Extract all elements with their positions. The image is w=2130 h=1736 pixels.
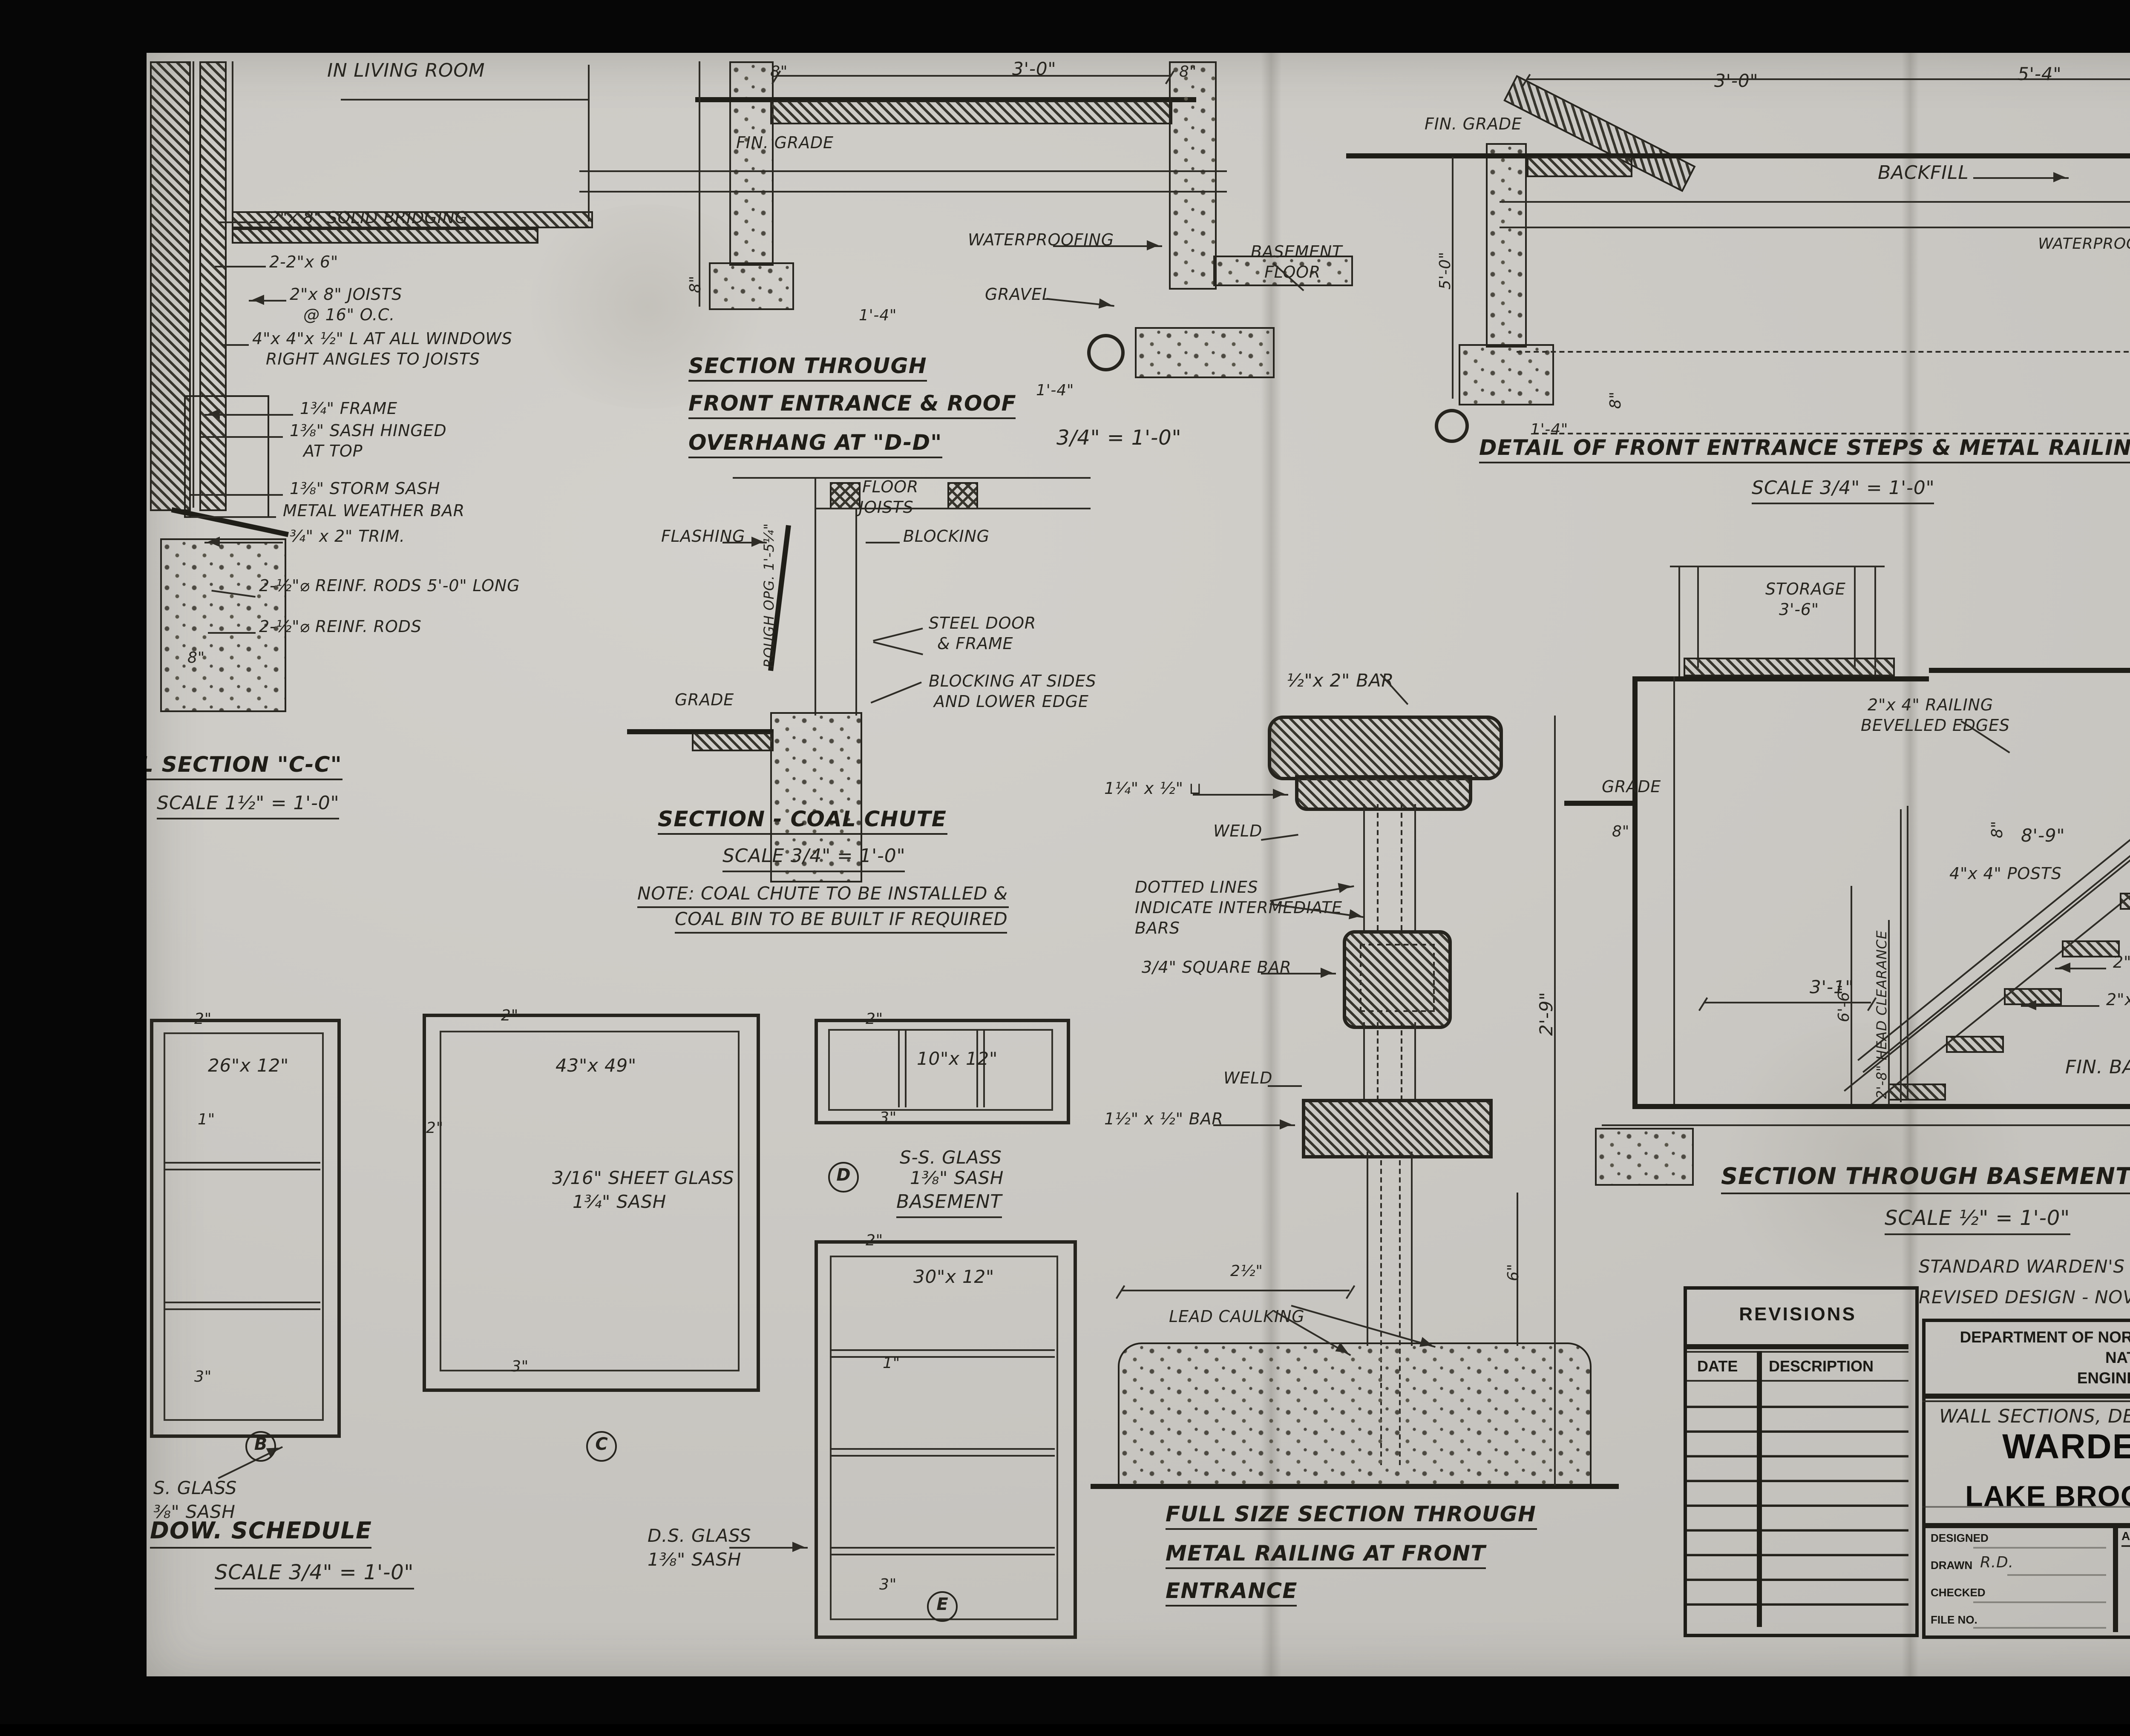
square-bar-dashed-core <box>1360 944 1435 1012</box>
dim-8in: 8" <box>1612 825 1629 842</box>
revisions-col-date: DATE <box>1697 1358 1738 1375</box>
field-drawn-value: R.D. <box>1980 1555 2014 1573</box>
window-b-tag: B <box>245 1431 276 1462</box>
leader-arrow <box>2021 1005 2099 1008</box>
footing <box>1135 327 1275 378</box>
window-b-divider <box>164 1169 320 1171</box>
label-bottom-bar: 1½" x ½" BAR <box>1104 1112 1223 1131</box>
dim-8in: 8" <box>1179 65 1197 82</box>
first-floor-line <box>1929 668 2130 672</box>
label-waterproofing: WATERPROOFING <box>968 233 1114 252</box>
drain-tile-circle <box>1087 334 1125 371</box>
dim-2half <box>1121 1290 1350 1292</box>
window-d-glass2: 1⅜" SASH <box>910 1169 1004 1189</box>
window-b-size: 26"x 12" <box>208 1056 289 1077</box>
window-schedule-title: DOW. SCHEDULE <box>150 1520 372 1549</box>
dim-8ft9: 8'-9" <box>2021 826 2065 847</box>
label-blocking-sides2: AND LOWER EDGE <box>934 695 1089 714</box>
window-b-divider <box>164 1302 320 1304</box>
window-e-dim1: 1" <box>883 1356 900 1374</box>
grade-line <box>1564 801 1632 805</box>
window-e-divider <box>830 1349 1055 1352</box>
dim-5ft: 5'-0" <box>1438 252 1456 290</box>
window-e-divider <box>830 1547 1055 1549</box>
dim-5ft4: 5'-4" <box>2018 65 2062 85</box>
label-sash-hinged2: AT TOP <box>303 445 363 463</box>
ground-line <box>1091 1484 1619 1488</box>
wall-line <box>232 61 234 211</box>
window-b-dim2: 2" <box>194 1012 212 1029</box>
leader-line <box>208 632 256 635</box>
dim-line <box>588 65 590 221</box>
window-b-dim3: 3" <box>194 1370 212 1387</box>
window-c-tag: C <box>586 1431 617 1462</box>
leader-line <box>218 221 266 224</box>
floor-joist <box>947 482 978 509</box>
label-weld2: WELD <box>1223 1072 1272 1090</box>
ground-hatch <box>1527 157 1632 177</box>
label-trim: ¾" x 2" TRIM. <box>290 530 405 549</box>
label-angle-windows2: RIGHT ANGLES TO JOISTS <box>266 353 480 371</box>
label-angle-windows: 4"x 4"x ½" L AT ALL WINDOWS <box>252 332 512 351</box>
storage-slab-hatch <box>1684 658 1895 676</box>
leader-arrow <box>1193 794 1288 796</box>
window-e-glass: D.S. GLASS <box>648 1526 751 1547</box>
window-e-size: 30"x 12" <box>913 1268 994 1288</box>
label-2x6: 2-2"x 6" <box>269 256 338 274</box>
guide-line <box>699 61 701 307</box>
ground-hatch <box>692 733 774 751</box>
leader-arrow <box>2055 968 2106 970</box>
label-waterproofing: WATERPROOFING <box>2038 237 2130 254</box>
titleblock-subject: WALL SECTIONS, DETAILS. <box>1939 1407 2130 1429</box>
approval-signature <box>2123 1530 2130 1625</box>
label-joists-spacing: @ 16" O.C. <box>303 308 395 327</box>
dim-8in-vert: 8" <box>1990 821 2008 838</box>
window-b-divider <box>164 1162 320 1164</box>
grade-line <box>1346 153 2130 158</box>
dotted-rule <box>1973 1627 2106 1630</box>
leader-line <box>191 494 283 497</box>
window-c-dim2: 2" <box>501 1009 518 1026</box>
project-stamp-line2: LAKE BROOK N.I.D. FUNDY N.P. <box>1874 1480 2130 1515</box>
window-c-glass2: 1¾" SASH <box>573 1193 666 1213</box>
stairs-scale: SCALE ½" = 1'-0" <box>1885 1208 2070 1235</box>
label-square-bar: 3/4" SQUARE BAR <box>1142 961 1292 980</box>
titleblock-rule <box>1922 1394 2130 1398</box>
window-d-divider <box>905 1029 907 1107</box>
intermediate-bar-dashed <box>1377 1022 1379 1101</box>
label-storage: STORAGE <box>1765 583 1846 601</box>
label-steel-door: STEEL DOOR <box>929 617 1036 635</box>
railing-title2: METAL RAILING AT FRONT <box>1166 1542 1486 1569</box>
window-d-room: BASEMENT <box>896 1193 1002 1218</box>
footing <box>709 262 794 310</box>
label-lead-caulking: LEAD CAULKING <box>1169 1310 1304 1329</box>
dim-1ft4: 1'-4" <box>1036 383 1074 401</box>
steps-detail-title: DETAIL OF FRONT ENTRANCE STEPS & METAL R… <box>1479 436 2130 464</box>
label-dotted-lines3: BARS <box>1135 922 1180 940</box>
label-half-2-bar: ½"x 2" BAR <box>1287 671 1394 692</box>
label-backfill: BACKFILL <box>1878 164 1969 185</box>
window-c-dim3: 3" <box>511 1359 529 1377</box>
stair-tread <box>1946 1036 2004 1053</box>
label-weather-bar: METAL WEATHER BAR <box>283 504 465 523</box>
storage-line <box>1670 566 1885 568</box>
window-e-divider <box>830 1455 1055 1457</box>
wall-line <box>855 508 858 716</box>
coal-chute-scale: SCALE 3/4" = 1'-0" <box>722 847 906 872</box>
section-dd-title2: FRONT ENTRANCE & ROOF <box>688 392 1016 420</box>
dim-2half-label: 2½" <box>1230 1264 1263 1282</box>
label-fin-grade: FIN. GRADE <box>1425 118 1522 136</box>
window-e-divider <box>830 1356 1055 1359</box>
bar-edge <box>1363 804 1366 930</box>
leader-arrow <box>204 414 293 417</box>
window-c-size: 43"x 49" <box>556 1056 636 1077</box>
dim-3ft: 3'-0" <box>1012 60 1056 80</box>
leader-arrow <box>1973 177 2069 180</box>
leader-arrow <box>729 1547 808 1549</box>
window-e-divider <box>830 1554 1055 1556</box>
scan-border-left <box>0 0 147 1724</box>
label-floor-joists2: JOISTS <box>859 501 914 520</box>
label-railing: 2"x 4" RAILING <box>1868 698 1993 717</box>
scanned-blueprint-page: IN LIVING ROOM 2"x 8" SOLID BRIDGING 2-2… <box>0 0 2130 1724</box>
field-designed: DESIGNED <box>1931 1533 1989 1545</box>
revisions-rule <box>1687 1380 1908 1382</box>
dim-line <box>341 99 588 101</box>
ground-hatch <box>770 101 1172 124</box>
label-grade: GRADE <box>675 693 734 712</box>
coal-chute-note1: NOTE: COAL CHUTE TO BE INSTALLED & <box>637 884 1008 908</box>
footing <box>1595 1128 1694 1186</box>
floor-hatch <box>232 228 538 244</box>
dim-8in-vert: 8" <box>1609 391 1626 409</box>
leader-line <box>866 542 900 544</box>
section-dd-scale: 3/4" = 1'-0" <box>1056 428 1181 451</box>
window-b-dim1: 1" <box>198 1112 215 1130</box>
dotted-rule <box>1973 1547 2106 1549</box>
revisions-title: REVISIONS <box>1684 1305 1912 1325</box>
window-c-glass: 3/16" SHEET GLASS <box>552 1169 734 1189</box>
drain-tile-circle <box>1435 409 1469 443</box>
bar-edge <box>1367 1152 1369 1346</box>
dotted-rule <box>1973 1601 2106 1604</box>
window-b-divider <box>164 1308 320 1311</box>
concrete-step <box>1118 1342 1592 1489</box>
window-b-inner <box>164 1032 324 1421</box>
leader-line <box>201 436 283 439</box>
label-joists: 2"x 8" JOISTS <box>290 288 402 307</box>
section-cc-scale: SCALE 1½" = 1'-0" <box>157 794 340 819</box>
window-d-dim2: 2" <box>866 1012 883 1029</box>
window-c-dim2l: 2" <box>426 1121 443 1138</box>
window-e-dim2: 2" <box>866 1233 883 1251</box>
leader-line <box>222 344 249 347</box>
stair-tread <box>2062 940 2120 957</box>
leader-arrow <box>204 542 283 544</box>
label-in-living-room: IN LIVING ROOM <box>327 61 485 83</box>
foundation-wall <box>1169 61 1217 290</box>
titleblock-dept2: NATIONAL PARKS BRANCH <box>1926 1349 2130 1366</box>
intermediate-bar-dashed <box>1401 804 1402 930</box>
titleblock-note1: STANDARD WARDEN'S RESIDENCE - TYPE N.P.2… <box>1919 1257 2130 1278</box>
rail-channel <box>1295 775 1472 811</box>
label-blocking: BLOCKING <box>903 530 990 549</box>
label-railing2: BEVELLED EDGES <box>1861 719 2010 738</box>
scan-border-bottom <box>0 1676 2130 1724</box>
field-drawn: DRAWN <box>1931 1561 1972 1572</box>
titleblock-dept3: ENGINEERING SERVICES DIVISION <box>1926 1370 2130 1387</box>
window-e-divider <box>830 1448 1055 1451</box>
stair-post <box>1900 809 1903 1102</box>
label-posts: 4"x 4" POSTS <box>1949 867 2062 886</box>
dim-1ft4: 1'-4" <box>859 308 897 326</box>
label-fin-grade: FIN. GRADE <box>736 136 834 155</box>
window-d-divider <box>898 1029 901 1107</box>
leader-line <box>1268 1085 1302 1088</box>
steps-detail-scale: SCALE 3/4" = 1'-0" <box>1752 479 1935 504</box>
wall-line <box>1632 676 1637 1106</box>
dim-8in: 8" <box>187 651 205 668</box>
stair-tread <box>1888 1084 1946 1101</box>
waterproofing-dashed <box>1517 351 2130 353</box>
label-flashing: FLASHING <box>661 530 745 549</box>
titleblock-rule <box>1922 1400 2130 1403</box>
label-gravel: GRAVEL <box>985 288 1051 307</box>
label-tread: 2"x 10" TREAD <box>2113 956 2130 974</box>
label-weld: WELD <box>1213 825 1262 843</box>
bar-edge <box>1411 1152 1413 1346</box>
guide-line <box>579 191 1227 193</box>
section-cc-title: L SECTION "C-C" <box>140 753 342 781</box>
rail-bottom-bar <box>1302 1099 1493 1158</box>
dim-2ft9: 2'-9" <box>1537 992 1557 1036</box>
window-e-tag: E <box>927 1591 958 1622</box>
field-file-no: FILE NO. <box>1931 1615 1977 1627</box>
railing-title3: ENTRANCE <box>1166 1579 1298 1607</box>
window-b-glass: S. GLASS <box>153 1479 237 1499</box>
project-stamp-line1: WARDEN'S RESIDENCE <box>1922 1428 2130 1469</box>
label-dotted-lines: DOTTED LINES <box>1135 881 1258 900</box>
coal-chute-note2: COAL BIN TO BE BUILT IF REQUIRED <box>675 910 1008 934</box>
slab-line <box>1602 1124 2130 1127</box>
revisions-rule <box>1687 1344 1908 1348</box>
intermediate-bar-dashed <box>1401 1022 1402 1101</box>
stair-post <box>1907 806 1909 1099</box>
dim-line-vert <box>1554 716 1557 1486</box>
label-floor-joists: FLOOR <box>862 480 918 499</box>
field-checked: CHECKED <box>1931 1588 1986 1600</box>
section-dd-title1: SECTION THROUGH <box>688 354 927 382</box>
storage-line <box>1678 566 1681 678</box>
railing-title1: FULL SIZE SECTION THROUGH <box>1166 1503 1536 1530</box>
dim-line-3ft <box>777 75 1169 77</box>
leader-line <box>191 516 276 519</box>
bar-edge <box>1414 1022 1417 1101</box>
window-e-inner <box>830 1256 1058 1620</box>
stairs-title: SECTION THROUGH BASEMENT STAIRS <box>1721 1165 2130 1195</box>
footing <box>1459 344 1554 405</box>
storage-line <box>1854 566 1857 668</box>
backfill-line <box>1500 227 2130 229</box>
leader-line <box>215 266 266 268</box>
dotted-rule <box>2007 1574 2106 1577</box>
window-d-size: 10"x 12" <box>917 1049 998 1070</box>
label-sash-hinged: 1⅜" SASH HINGED <box>290 424 446 443</box>
titleblock-rule <box>1922 1523 2130 1527</box>
revisions-col-divider <box>1757 1351 1761 1627</box>
foundation-wall <box>1486 143 1527 348</box>
window-schedule-scale: SCALE 3/4" = 1'-0" <box>215 1562 414 1589</box>
revisions-col-description: DESCRIPTION <box>1769 1358 1874 1375</box>
faint-rule <box>1922 1506 2130 1509</box>
wall-line <box>1673 676 1676 1106</box>
foundation-wall <box>729 61 774 266</box>
label-storage-dim: 3'-6" <box>1779 603 1819 622</box>
dim-head-clearance: 2'-8" HEAD CLEARANCE <box>1874 930 1890 1099</box>
label-solid-bridging: 2"x 8" SOLID BRIDGING <box>269 211 468 230</box>
label-storm-sash: 1⅜" STORM SASH <box>290 482 440 501</box>
revisions-rule <box>1687 1351 1908 1354</box>
floor-joist <box>830 482 861 509</box>
stair-tread <box>2120 893 2130 910</box>
scan-border-top <box>0 0 2130 53</box>
intermediate-bar-dashed <box>1377 804 1379 930</box>
leader-arrow <box>249 300 286 302</box>
window-d-tag: D <box>828 1162 859 1193</box>
bar-edge <box>1363 1022 1366 1101</box>
backfill-line <box>1500 201 2130 204</box>
bar-edge <box>1414 804 1417 930</box>
basement-floor-line <box>1632 1104 2130 1108</box>
wall-line <box>815 477 817 716</box>
floor-line <box>1632 676 1929 681</box>
label-fin-basement-floor: FIN. BASEMENT FLOOR <box>2065 1058 2130 1080</box>
rail-top-bar <box>1268 716 1503 780</box>
label-reinf-rods-long: 2-½"⌀ REINF. RODS 5'-0" LONG <box>259 579 520 598</box>
window-e-glass2: 1⅜" SASH <box>648 1550 741 1571</box>
label-reinf-rods: 2-½"⌀ REINF. RODS <box>259 620 422 639</box>
titleblock-divider <box>2113 1523 2117 1632</box>
label-grade: GRADE <box>1602 780 1661 799</box>
label-frame: 1¾" FRAME <box>300 402 397 421</box>
label-channel: 1¼" x ½" ⊔ <box>1104 782 1202 801</box>
label-steel-door2: & FRAME <box>937 637 1013 656</box>
label-blocking-sides: BLOCKING AT SIDES <box>929 675 1096 693</box>
coal-chute-title: SECTION - COAL CHUTE <box>658 808 947 835</box>
window-e-dim3: 3" <box>879 1578 897 1595</box>
leader-arrow <box>1213 1124 1295 1127</box>
label-rough-opening: ROUGH OPG. 1'-5¼" <box>762 523 777 668</box>
storage-line <box>1697 566 1700 668</box>
dim-3ft1-label: 3'-1" <box>1810 978 1854 998</box>
window-d-glass: S-S. GLASS <box>900 1148 1002 1169</box>
titleblock-dept1: DEPARTMENT OF NORTHERN AFFAIRS & NATIONA… <box>1926 1329 2130 1346</box>
label-stringer: 2"x 10" STRINGER <box>2106 993 2130 1012</box>
dim-3ft: 3'-0" <box>1714 72 1759 92</box>
dim-6in: 6" <box>1506 1264 1524 1281</box>
guide-line <box>579 170 1227 173</box>
dim-8in-vert: 8" <box>688 276 706 293</box>
section-dd-title3: OVERHANG AT "D-D" <box>688 431 942 459</box>
titleblock-note2: REVISED DESIGN - NOV. 1955. <box>1919 1288 2130 1308</box>
label-basement-floor: BASEMENT <box>1251 245 1342 264</box>
window-d-dim3: 3" <box>879 1111 897 1128</box>
dim-8in: 8" <box>770 65 788 82</box>
